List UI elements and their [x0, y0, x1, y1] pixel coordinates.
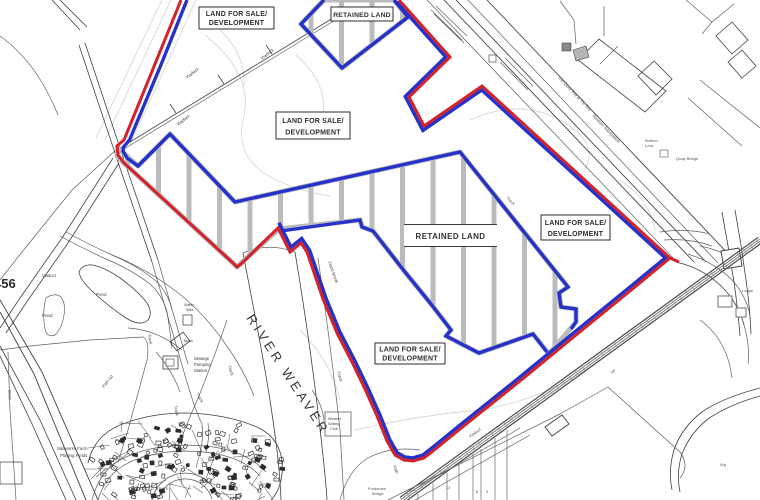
svg-text:Lodge: Lodge [742, 288, 754, 293]
svg-text:Saltworks Farm: Saltworks Farm [57, 446, 88, 451]
svg-text:9: 9 [486, 490, 488, 494]
svg-text:RETAINED LAND: RETAINED LAND [416, 232, 486, 241]
svg-text:Sailing: Sailing [328, 422, 339, 426]
svg-text:LAND FOR SALE/: LAND FOR SALE/ [545, 220, 607, 227]
svg-text:DEVELOPMENT: DEVELOPMENT [209, 20, 265, 27]
svg-text:DEVELOPMENT: DEVELOPMENT [548, 231, 604, 238]
svg-text:Water: Water [184, 303, 195, 307]
svg-text:DEVELOPMENT: DEVELOPMENT [285, 130, 341, 137]
svg-text:Lock: Lock [645, 143, 653, 148]
svg-text:DEVELOPMENT: DEVELOPMENT [382, 355, 438, 362]
svg-text:Quay Bridge: Quay Bridge [676, 156, 699, 161]
svg-text:456: 456 [0, 276, 16, 291]
svg-text:Sewage: Sewage [194, 356, 210, 361]
svg-text:Wg: Wg [720, 462, 726, 467]
svg-text:Wks: Wks [186, 308, 193, 312]
svg-text:Tanks: Tanks [183, 339, 193, 343]
svg-text:LAND FOR SALE/: LAND FOR SALE/ [206, 11, 268, 18]
svg-text:12: 12 [446, 486, 450, 490]
svg-text:Viaduct: Viaduct [42, 273, 57, 278]
svg-text:Bridge: Bridge [372, 491, 384, 496]
svg-text:Station: Station [194, 368, 208, 373]
svg-text:RETAINED LAND: RETAINED LAND [333, 12, 391, 19]
svg-text:Pond: Pond [96, 292, 107, 297]
svg-text:8: 8 [476, 490, 478, 494]
svg-text:LAND FOR SALE/: LAND FOR SALE/ [379, 346, 441, 353]
svg-text:Weaver: Weaver [328, 417, 342, 421]
svg-text:Club: Club [330, 427, 338, 431]
svg-text:Pumping: Pumping [194, 362, 211, 367]
svg-text:Playing Fields: Playing Fields [60, 453, 88, 458]
svg-text:LAND FOR SALE/: LAND FOR SALE/ [282, 118, 344, 125]
